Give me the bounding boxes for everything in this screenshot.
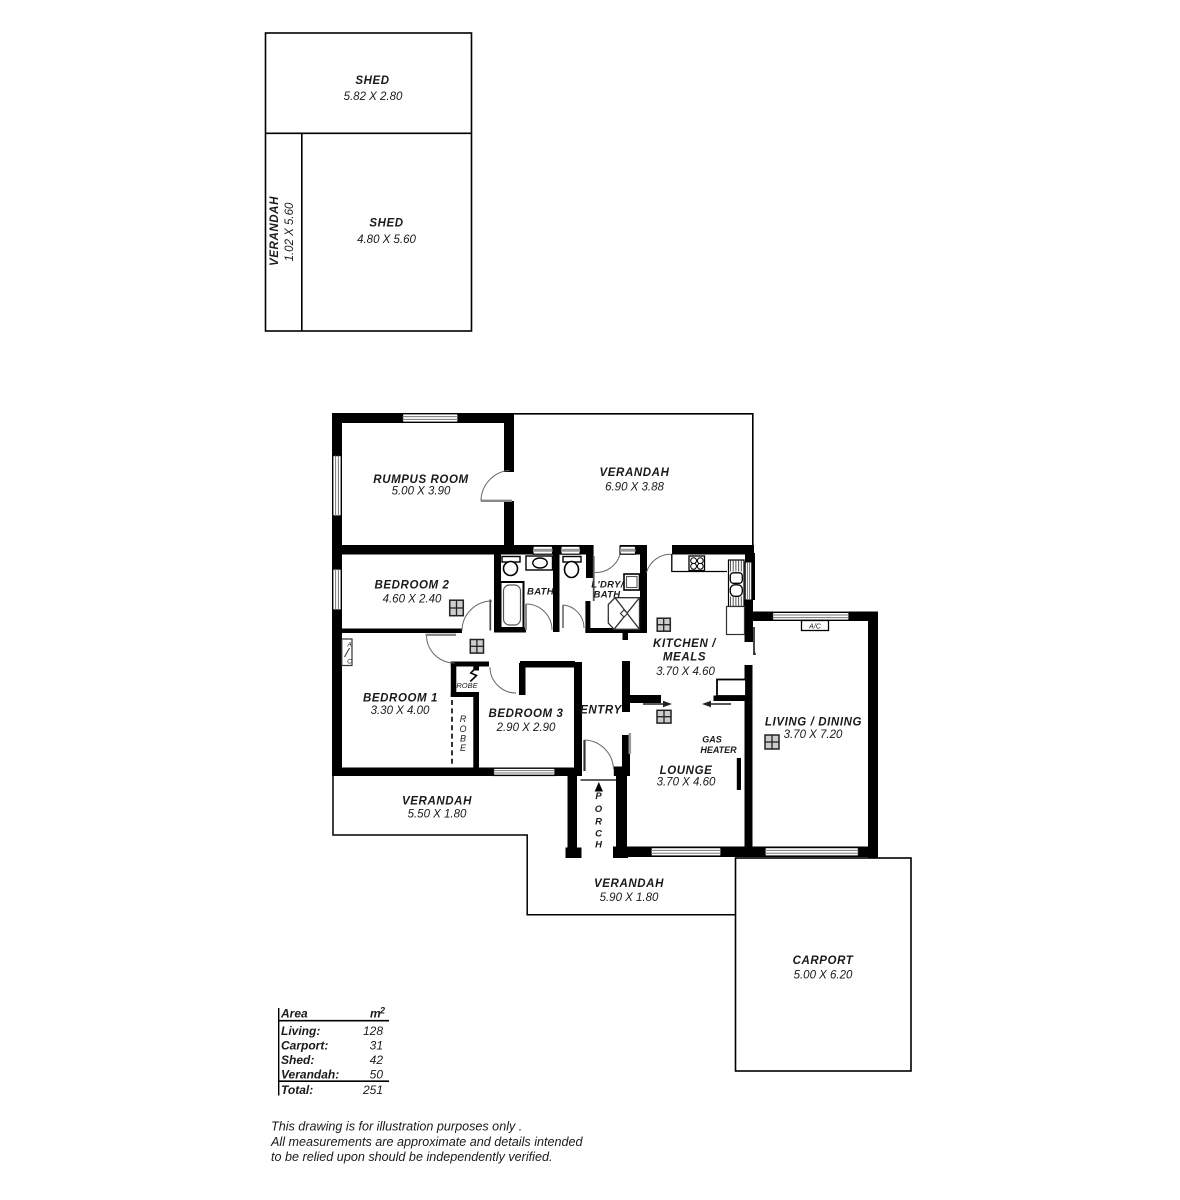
svg-text:E: E [460,743,467,753]
svg-text:O: O [459,724,466,734]
svg-text:R: R [460,714,467,724]
svg-text:3.70 X 4.60: 3.70 X 4.60 [657,777,716,789]
svg-text:Shed:: Shed: [281,1053,314,1067]
svg-text:R: R [595,817,602,828]
svg-text:5.00 X 6.20: 5.00 X 6.20 [794,970,853,982]
svg-text:5.50 X 1.80: 5.50 X 1.80 [408,809,467,821]
svg-text:3.70 X 7.20: 3.70 X 7.20 [784,729,843,741]
svg-text:5.82 X 2.80: 5.82 X 2.80 [344,91,403,103]
svg-text:31: 31 [370,1039,383,1053]
svg-text:BEDROOM 2: BEDROOM 2 [374,580,449,592]
svg-text:2: 2 [379,1006,385,1016]
svg-text:HEATER: HEATER [700,745,737,755]
svg-text:SHED: SHED [355,75,389,87]
svg-text:4.60 X 2.40: 4.60 X 2.40 [383,594,442,606]
svg-text:Total:: Total: [281,1083,313,1097]
svg-text:RUMPUS ROOM: RUMPUS ROOM [373,474,468,486]
svg-text:ROBE: ROBE [456,681,478,690]
svg-text:A: A [346,642,351,649]
svg-text:VERANDAH: VERANDAH [402,796,472,808]
svg-text:Verandah:: Verandah: [281,1067,339,1081]
svg-text:2.90 X 2.90: 2.90 X 2.90 [496,722,556,734]
svg-text:SHED: SHED [369,218,403,230]
svg-text:H: H [595,840,603,851]
svg-text:P: P [595,791,602,802]
svg-text:3.70 X 4.60: 3.70 X 4.60 [656,666,715,678]
svg-text:This drawing is for illustrati: This drawing is for illustration purpose… [271,1120,522,1134]
svg-text:BATH: BATH [527,587,555,598]
svg-text:5.00 X 3.90: 5.00 X 3.90 [392,486,451,498]
svg-text:Carport:: Carport: [281,1039,328,1053]
svg-text:ENTRY: ENTRY [580,705,622,717]
svg-text:GAS: GAS [702,735,722,745]
svg-text:Living:: Living: [281,1024,320,1038]
svg-text:BEDROOM 1: BEDROOM 1 [363,693,438,705]
svg-text:VERANDAH: VERANDAH [594,878,664,890]
svg-text:Area: Area [280,1007,308,1021]
svg-text:MEALS: MEALS [663,652,706,664]
svg-text:50: 50 [370,1067,384,1081]
svg-text:1.02 X 5.60: 1.02 X 5.60 [284,202,296,261]
svg-text:KITCHEN /: KITCHEN / [653,638,717,650]
svg-text:3.30 X 4.00: 3.30 X 4.00 [371,705,430,717]
svg-text:A/C: A/C [808,624,822,631]
svg-text:LIVING / DINING: LIVING / DINING [765,717,862,729]
svg-text:VERANDAH: VERANDAH [269,196,281,266]
svg-text:All measurements are approxima: All measurements are approximate and det… [270,1135,584,1149]
svg-text:C: C [347,659,352,666]
svg-text:B: B [460,734,466,744]
svg-text:BEDROOM 3: BEDROOM 3 [488,708,563,720]
svg-text:CARPORT: CARPORT [793,955,854,967]
svg-text:4.80 X 5.60: 4.80 X 5.60 [357,234,416,246]
svg-text:O: O [595,804,603,815]
svg-text:42: 42 [370,1053,384,1067]
svg-text:BATH: BATH [594,590,622,601]
svg-text:5.90 X 1.80: 5.90 X 1.80 [600,892,659,904]
svg-text:6.90 X 3.88: 6.90 X 3.88 [605,482,664,494]
svg-text:C: C [595,829,602,840]
svg-text:to be relied upon should be in: to be relied upon should be independentl… [271,1150,552,1164]
svg-text:251: 251 [362,1083,383,1097]
svg-text:LOUNGE: LOUNGE [660,765,713,777]
svg-text:VERANDAH: VERANDAH [600,467,670,479]
svg-text:128: 128 [363,1024,383,1038]
